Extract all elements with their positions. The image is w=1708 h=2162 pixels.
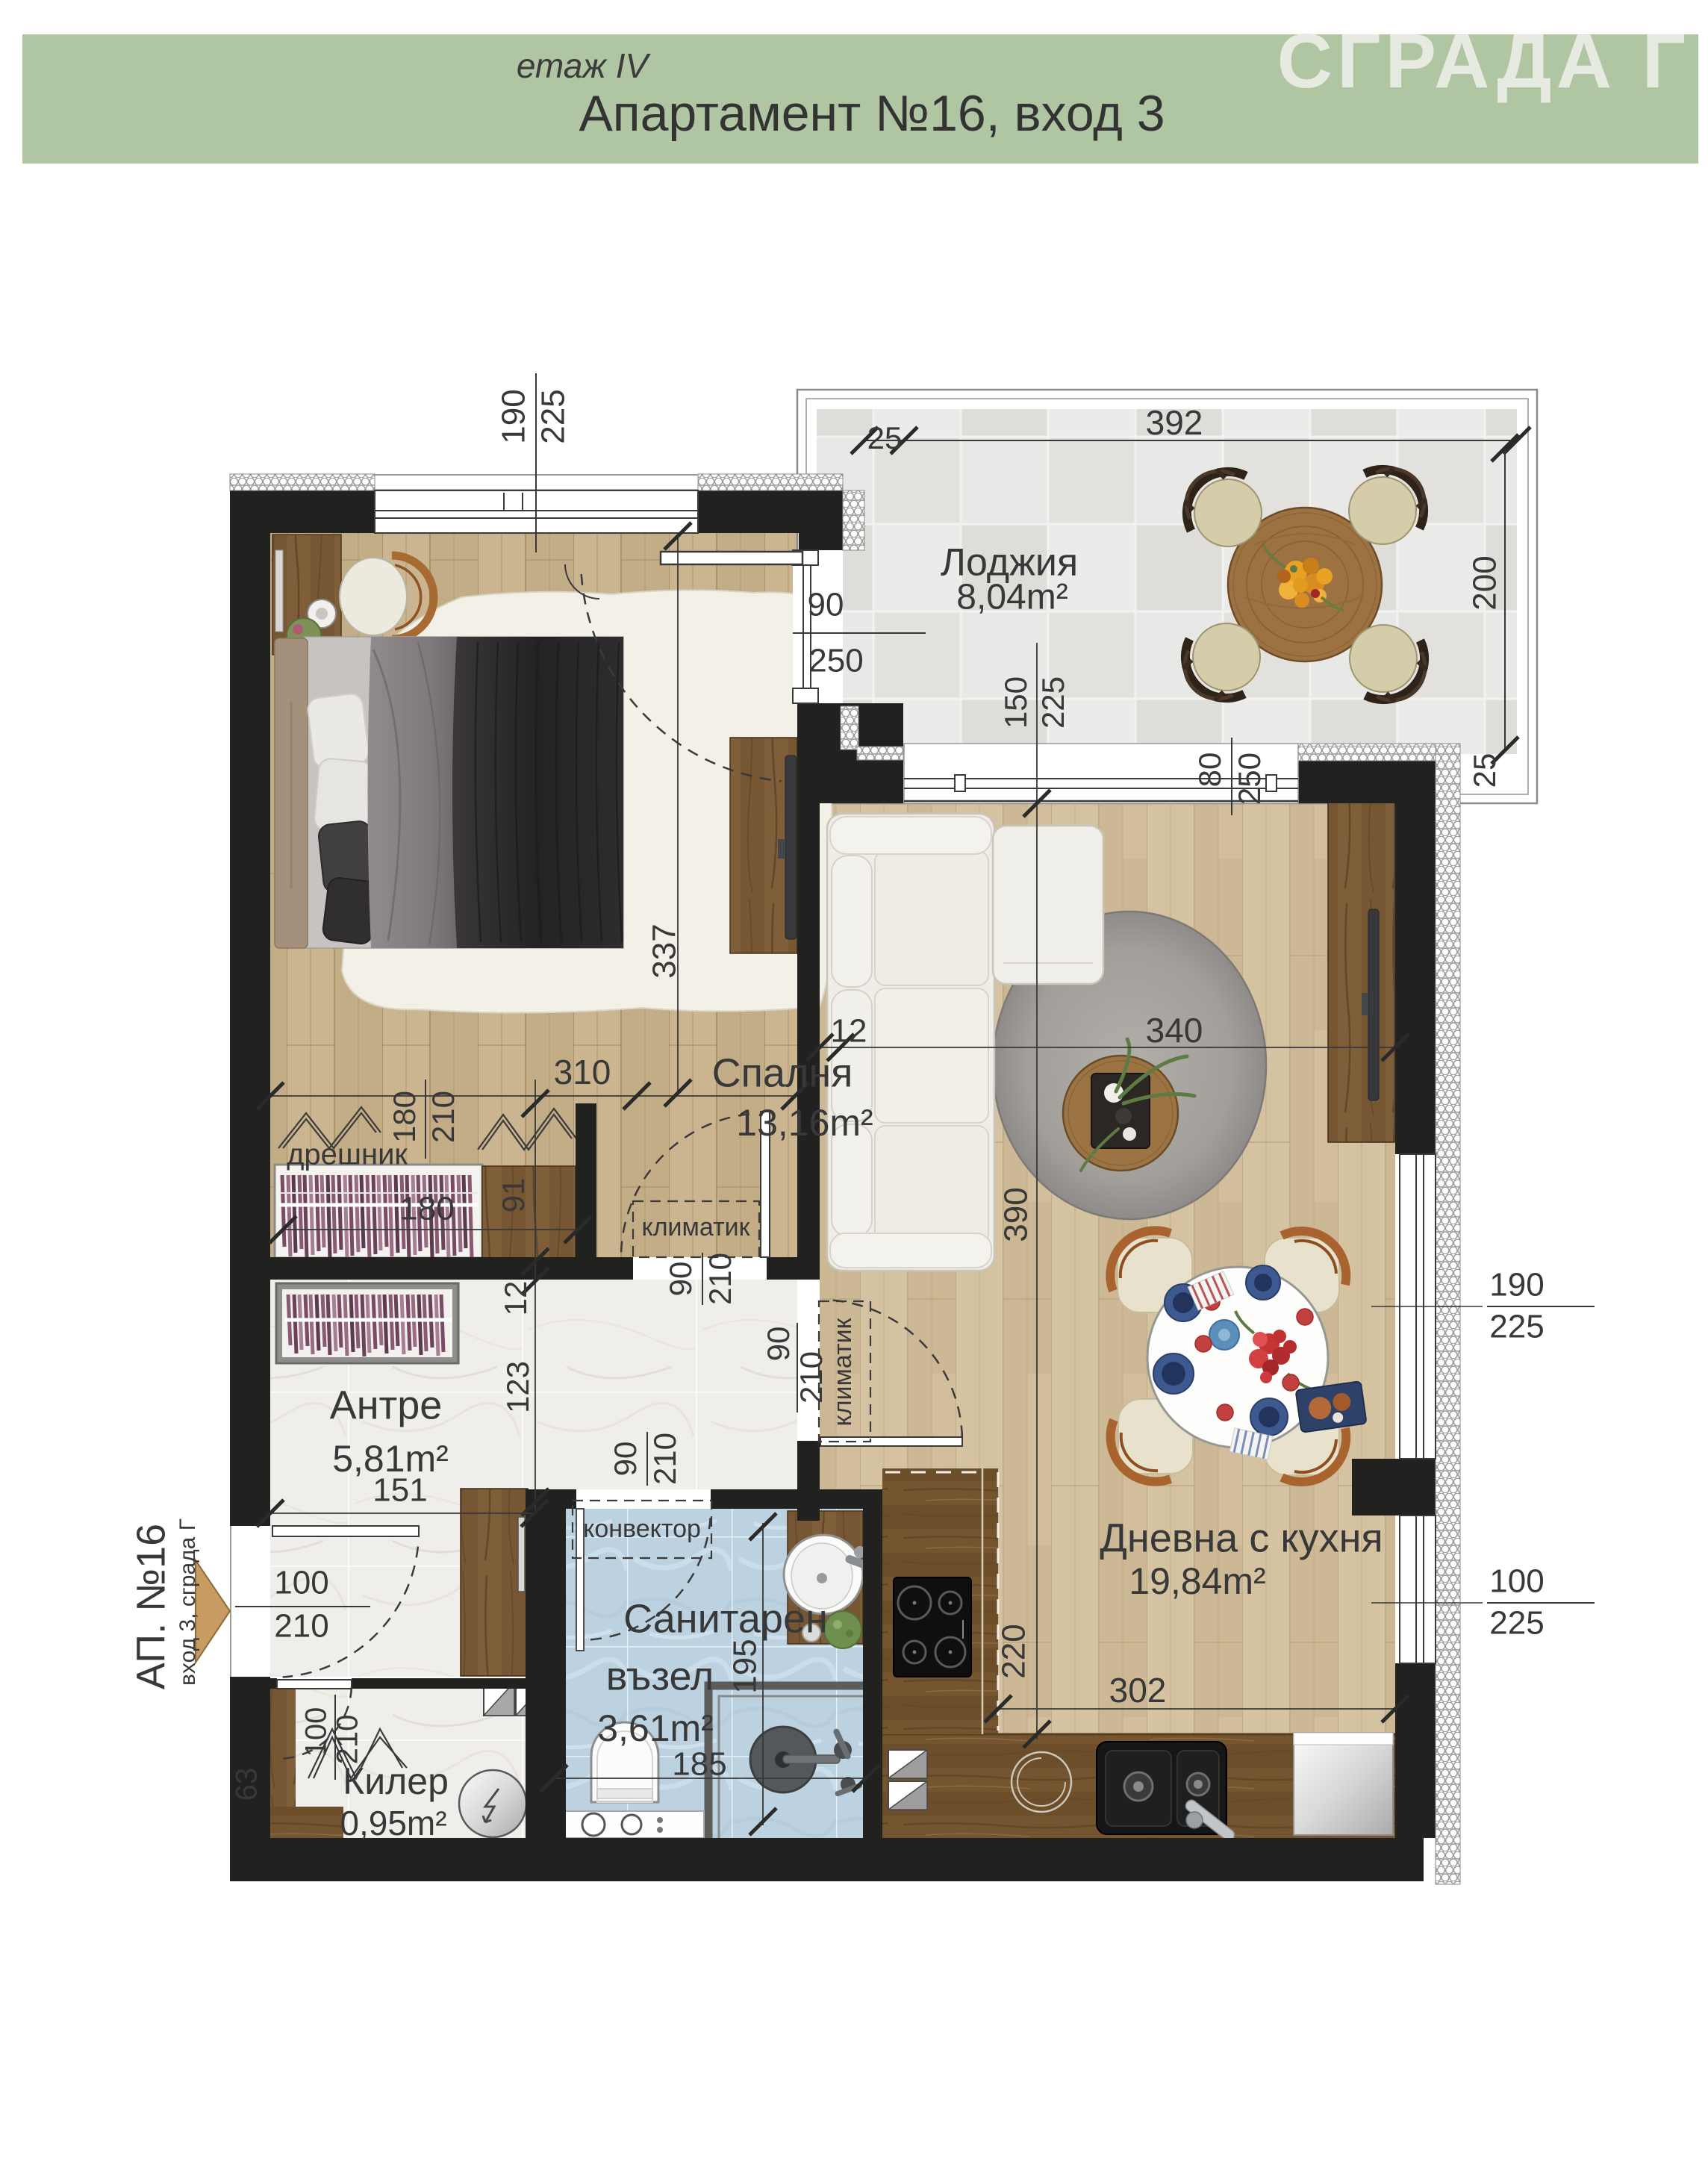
svg-text:337: 337 — [646, 923, 683, 978]
svg-text:210: 210 — [331, 1715, 364, 1765]
svg-text:Килер: Килер — [343, 1760, 449, 1802]
svg-text:100: 100 — [300, 1707, 333, 1757]
svg-text:185: 185 — [672, 1746, 726, 1783]
svg-text:210: 210 — [794, 1351, 829, 1404]
svg-text:3,61m²: 3,61m² — [597, 1707, 714, 1749]
svg-text:225: 225 — [535, 389, 572, 443]
svg-text:180: 180 — [387, 1091, 422, 1143]
svg-text:250: 250 — [1232, 753, 1267, 805]
svg-text:възел: възел — [606, 1654, 714, 1698]
svg-text:225: 225 — [1035, 676, 1070, 729]
svg-text:СГРАДА Г: СГРАДА Г — [1277, 18, 1690, 104]
svg-text:210: 210 — [426, 1091, 461, 1143]
svg-text:0,95m²: 0,95m² — [340, 1804, 446, 1842]
svg-text:123: 123 — [500, 1361, 535, 1413]
svg-text:392: 392 — [1146, 403, 1203, 442]
svg-text:250: 250 — [808, 643, 863, 679]
svg-text:90: 90 — [663, 1262, 698, 1297]
svg-text:80: 80 — [1192, 753, 1227, 788]
svg-text:Дневна с кухня: Дневна с кухня — [1100, 1515, 1383, 1560]
svg-text:210: 210 — [702, 1253, 738, 1305]
svg-text:220: 220 — [996, 1624, 1032, 1678]
svg-text:конвектор: конвектор — [583, 1515, 701, 1543]
svg-text:195: 195 — [727, 1639, 764, 1693]
svg-text:63: 63 — [231, 1768, 264, 1801]
svg-text:310: 310 — [554, 1053, 611, 1091]
svg-text:91: 91 — [496, 1178, 531, 1213]
svg-text:390: 390 — [998, 1187, 1035, 1242]
svg-text:100: 100 — [274, 1565, 328, 1601]
svg-text:190: 190 — [1489, 1267, 1544, 1303]
svg-text:вход 3, сграда Г: вход 3, сграда Г — [175, 1518, 200, 1686]
svg-text:8,04m²: 8,04m² — [956, 578, 1067, 617]
svg-text:150: 150 — [998, 676, 1033, 729]
svg-text:210: 210 — [647, 1433, 682, 1485]
svg-text:225: 225 — [1489, 1309, 1544, 1345]
svg-text:225: 225 — [1489, 1605, 1544, 1642]
svg-text:12: 12 — [831, 1013, 867, 1050]
svg-text:90: 90 — [608, 1442, 643, 1477]
svg-text:90: 90 — [761, 1327, 796, 1362]
svg-text:190: 190 — [496, 389, 532, 443]
svg-text:Антре: Антре — [330, 1383, 443, 1427]
svg-text:климатик: климатик — [641, 1213, 750, 1242]
svg-text:АП. №16: АП. №16 — [128, 1524, 173, 1689]
svg-text:12: 12 — [498, 1281, 533, 1316]
svg-text:Апартамент №16, вход 3: Апартамент №16, вход 3 — [579, 85, 1165, 142]
svg-text:Санитарен: Санитарен — [623, 1596, 828, 1641]
svg-text:200: 200 — [1467, 555, 1503, 610]
svg-text:90: 90 — [808, 587, 844, 623]
svg-text:етаж IV: етаж IV — [517, 46, 652, 85]
svg-text:180: 180 — [399, 1191, 454, 1227]
svg-text:340: 340 — [1146, 1011, 1203, 1050]
svg-text:210: 210 — [274, 1608, 328, 1645]
svg-text:25: 25 — [867, 420, 903, 455]
svg-text:13,16m²: 13,16m² — [736, 1102, 873, 1144]
svg-text:климатик: климатик — [829, 1317, 857, 1426]
svg-text:151: 151 — [373, 1472, 427, 1509]
svg-text:19,84m²: 19,84m² — [1129, 1560, 1265, 1602]
svg-text:302: 302 — [1109, 1671, 1167, 1710]
svg-text:25: 25 — [1467, 753, 1502, 788]
svg-text:100: 100 — [1489, 1563, 1544, 1600]
svg-text:Спалня: Спалня — [712, 1050, 853, 1095]
